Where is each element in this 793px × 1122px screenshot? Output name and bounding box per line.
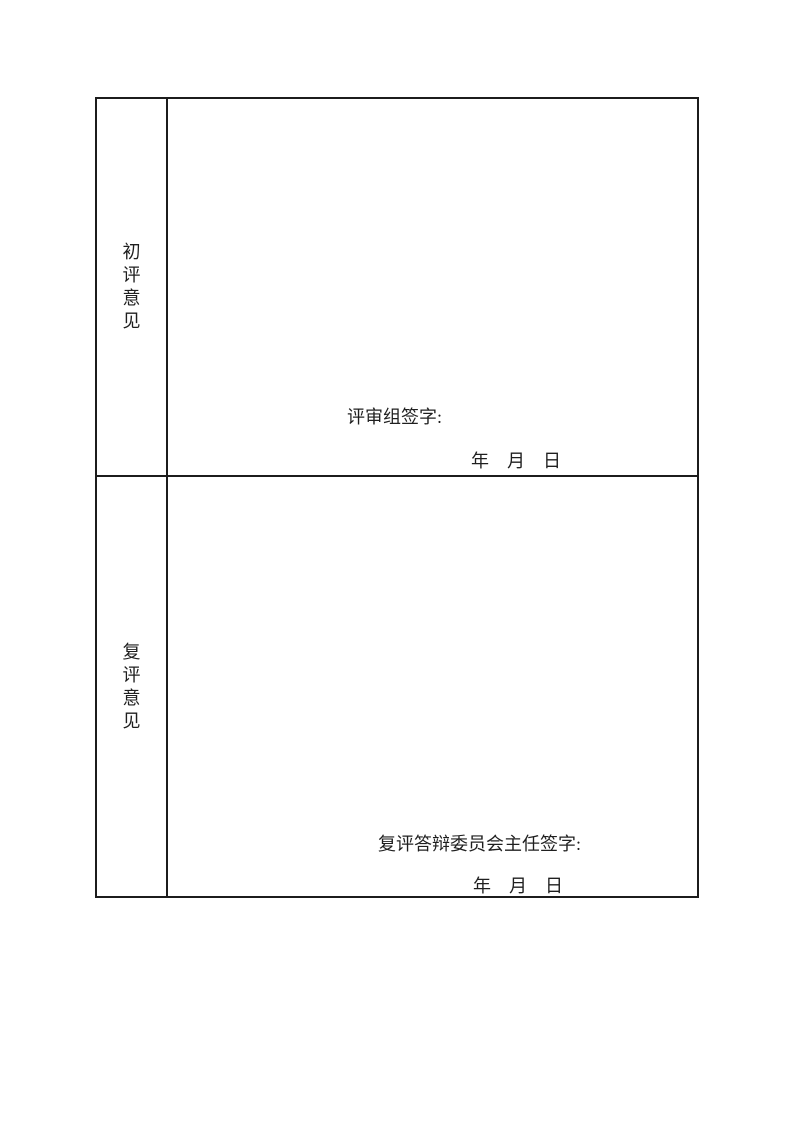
initial-review-label-cell: 初评意见 (97, 99, 168, 475)
secondary-review-label-cell: 复评意见 (97, 477, 168, 896)
initial-review-content-cell: 评审组签字: 年 月 日 (168, 99, 697, 475)
initial-review-date-line: 年 月 日 (471, 451, 561, 471)
secondary-review-date-line: 年 月 日 (473, 876, 563, 896)
review-opinion-table: 初评意见 评审组签字: 年 月 日 复评意见 复评答辩委员会主任签字: 年 月 … (95, 97, 699, 898)
initial-review-row: 初评意见 评审组签字: 年 月 日 (97, 99, 697, 477)
initial-review-label: 初评意见 (122, 241, 142, 333)
secondary-review-content-cell: 复评答辩委员会主任签字: 年 月 日 (168, 477, 697, 896)
secondary-review-row: 复评意见 复评答辩委员会主任签字: 年 月 日 (97, 477, 697, 896)
secondary-review-signature-label: 复评答辩委员会主任签字: (378, 834, 581, 854)
secondary-review-label: 复评意见 (122, 641, 142, 733)
initial-review-signature-label: 评审组签字: (347, 407, 442, 427)
document-page: 初评意见 评审组签字: 年 月 日 复评意见 复评答辩委员会主任签字: 年 月 … (0, 0, 793, 1122)
